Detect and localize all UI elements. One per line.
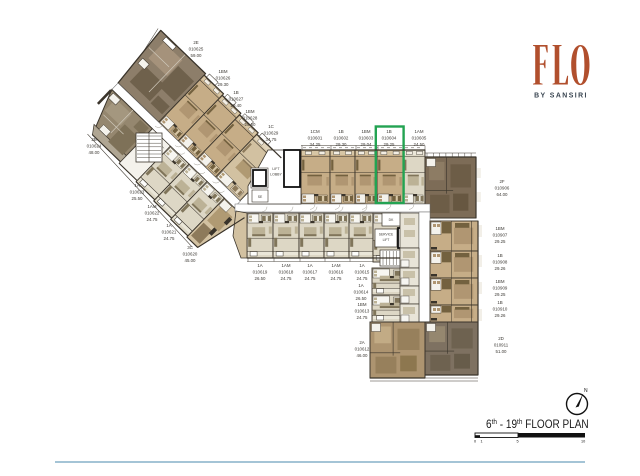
- svg-text:DK: DK: [389, 218, 394, 222]
- svg-text:10: 10: [581, 440, 585, 444]
- svg-text:6th - 19th FLOOR PLAN: 6th - 19th FLOOR PLAN: [486, 418, 589, 431]
- svg-text:BY SANSIRI: BY SANSIRI: [534, 93, 588, 100]
- svg-text:1: 1: [481, 440, 483, 444]
- svg-text:5: 5: [517, 440, 519, 444]
- svg-text:SE: SE: [258, 195, 263, 199]
- svg-text:N: N: [584, 388, 588, 394]
- svg-text:0: 0: [474, 440, 476, 444]
